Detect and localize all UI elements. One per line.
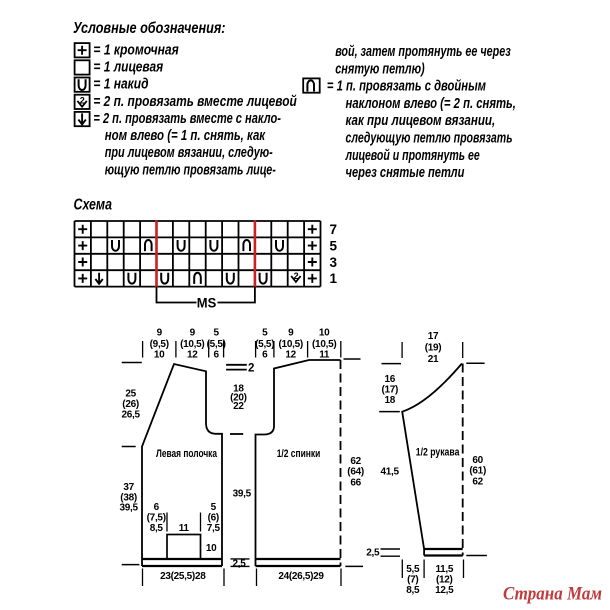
svg-text:23(25,5)28: 23(25,5)28 — [160, 571, 206, 582]
svg-text:9: 9 — [157, 327, 163, 338]
svg-text:2,5: 2,5 — [232, 559, 246, 570]
svg-text:11,5: 11,5 — [435, 564, 453, 575]
svg-text:следующую петлю провязать: следующую петлю провязать — [346, 131, 513, 147]
svg-text:11: 11 — [319, 350, 330, 361]
svg-text:22: 22 — [233, 401, 244, 412]
svg-text:= 1 накид: = 1 накид — [93, 77, 148, 93]
svg-text:16: 16 — [385, 374, 396, 385]
svg-text:8,5: 8,5 — [406, 585, 420, 596]
svg-text:1/2 спинки: 1/2 спинки — [277, 448, 321, 460]
svg-text:3: 3 — [330, 255, 338, 270]
svg-text:(7): (7) — [407, 575, 418, 586]
svg-text:10: 10 — [154, 350, 165, 361]
svg-text:= 1 п. провязать с двойным: = 1 п. провязать с двойным — [327, 79, 486, 95]
svg-text:62: 62 — [472, 477, 483, 488]
svg-text:снятую петлю): снятую петлю) — [335, 61, 425, 77]
svg-text:(12): (12) — [436, 575, 453, 586]
svg-text:8,5: 8,5 — [150, 523, 164, 534]
svg-text:2: 2 — [248, 363, 254, 375]
svg-text:наклоном влево (= 2 п. снять,: наклоном влево (= 2 п. снять, — [346, 96, 516, 112]
svg-text:1: 1 — [330, 271, 338, 286]
svg-text:(7,5): (7,5) — [147, 513, 166, 524]
svg-text:(5,5): (5,5) — [255, 339, 274, 350]
svg-text:5: 5 — [262, 327, 268, 338]
svg-text:ющую петлю провязать лице-: ющую петлю провязать лице- — [105, 162, 276, 178]
svg-text:2: 2 — [80, 96, 85, 106]
svg-text:11: 11 — [179, 523, 190, 534]
svg-text:5: 5 — [330, 238, 338, 253]
svg-text:10: 10 — [319, 327, 330, 338]
svg-text:Страна Мам: Страна Мам — [503, 584, 602, 605]
svg-text:5: 5 — [213, 327, 219, 338]
svg-text:= 1 кромочная: = 1 кромочная — [93, 43, 179, 59]
svg-text:9: 9 — [190, 327, 196, 338]
svg-text:7: 7 — [330, 222, 338, 237]
svg-text:1/2 рукава: 1/2 рукава — [416, 447, 460, 459]
svg-text:как при лицевом вязании,: как при лицевом вязании, — [346, 113, 496, 129]
svg-text:5,5: 5,5 — [406, 564, 420, 575]
svg-text:12: 12 — [285, 350, 296, 361]
svg-text:(10,5): (10,5) — [279, 339, 303, 350]
svg-text:Схема: Схема — [74, 197, 113, 214]
svg-text:(19): (19) — [425, 343, 442, 354]
svg-text:ном влево (= 1 п. снять, как: ном влево (= 1 п. снять, как — [105, 128, 266, 144]
svg-text:7,5: 7,5 — [207, 523, 221, 534]
svg-text:6: 6 — [213, 350, 219, 361]
svg-text:21: 21 — [428, 354, 439, 365]
svg-text:66: 66 — [350, 477, 361, 488]
svg-text:12,5: 12,5 — [435, 585, 454, 596]
svg-text:5: 5 — [211, 502, 217, 513]
svg-text:(9,5): (9,5) — [150, 339, 169, 350]
svg-text:(61): (61) — [469, 466, 486, 477]
svg-text:(17): (17) — [382, 385, 399, 396]
svg-text:18: 18 — [385, 395, 396, 406]
svg-text:39,5: 39,5 — [233, 489, 252, 500]
svg-text:через снятые петли: через снятые петли — [346, 165, 465, 181]
svg-text:2,5: 2,5 — [366, 547, 380, 558]
svg-text:12: 12 — [187, 350, 198, 361]
svg-text:9: 9 — [288, 327, 294, 338]
svg-text:2: 2 — [294, 271, 299, 281]
svg-text:вой, затем протянуть ее через: вой, затем протянуть ее через — [335, 44, 511, 60]
svg-text:17: 17 — [428, 331, 439, 342]
svg-text:25: 25 — [125, 389, 136, 400]
svg-text:= 2 п. провязать вместе лицево: = 2 п. провязать вместе лицевой — [93, 94, 297, 110]
svg-text:= 2 п. провязать вместе с накл: = 2 п. провязать вместе с накло- — [93, 111, 281, 127]
svg-text:Условные обозначения:: Условные обозначения: — [73, 20, 226, 37]
svg-text:(64): (64) — [347, 467, 364, 478]
svg-text:60: 60 — [472, 455, 483, 466]
svg-text:Левая полочка: Левая полочка — [156, 448, 218, 460]
svg-text:62: 62 — [350, 456, 361, 467]
svg-text:(10,5): (10,5) — [312, 339, 336, 350]
svg-text:MS: MS — [197, 296, 217, 311]
svg-text:26,5: 26,5 — [121, 410, 140, 421]
svg-text:(5,5): (5,5) — [207, 339, 226, 350]
svg-text:39,5: 39,5 — [119, 503, 138, 514]
svg-text:10: 10 — [206, 543, 217, 554]
svg-text:41,5: 41,5 — [380, 466, 399, 477]
svg-text:6: 6 — [262, 350, 268, 361]
svg-text:(10,5): (10,5) — [180, 339, 204, 350]
svg-text:24(26,5)29: 24(26,5)29 — [278, 571, 324, 582]
svg-text:6: 6 — [154, 502, 160, 513]
svg-text:при лицевом вязании, следую-: при лицевом вязании, следую- — [105, 145, 273, 161]
svg-text:(26): (26) — [122, 399, 139, 410]
svg-text:(6): (6) — [208, 513, 219, 524]
svg-text:= 1 лицевая: = 1 лицевая — [93, 60, 163, 76]
svg-text:лицевой и протянуть ее: лицевой и протянуть ее — [345, 148, 480, 164]
